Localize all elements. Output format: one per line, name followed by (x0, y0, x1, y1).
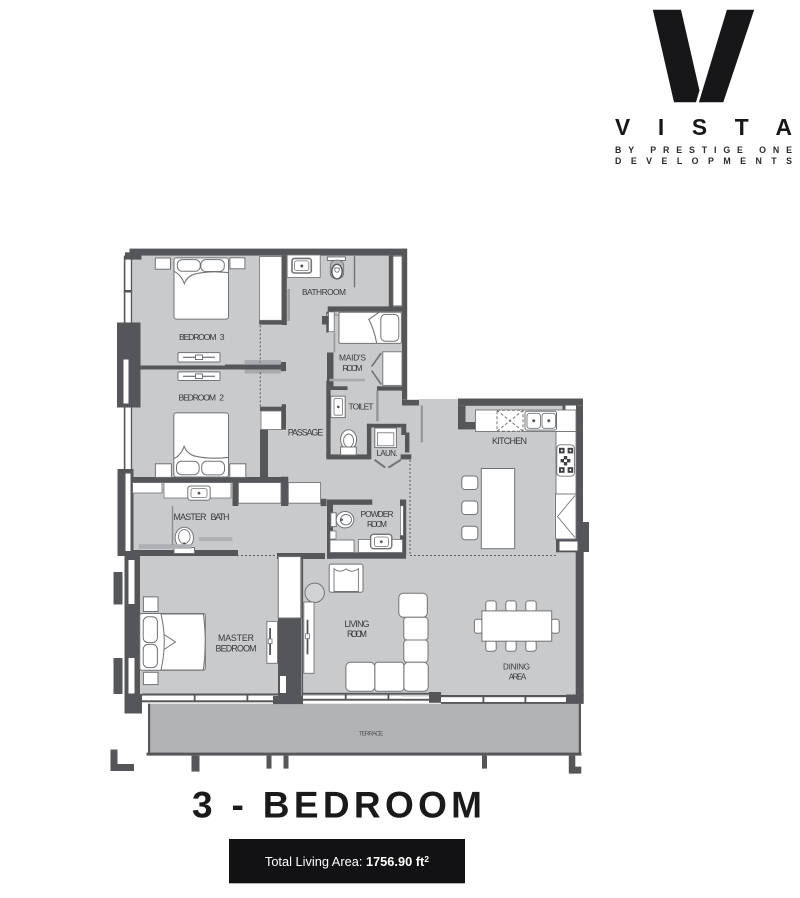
svg-text:PASSAGE: PASSAGE (288, 428, 324, 438)
svg-text:BATH: BATH (211, 512, 230, 522)
svg-text:DEVELOPMENTS: DEVELOPMENTS (615, 156, 792, 166)
svg-text:MAID'S: MAID'S (339, 353, 366, 363)
svg-text:3 - BEDROOM: 3 - BEDROOM (192, 785, 482, 826)
svg-text:Total Living Area: 1756.90 ft2: Total Living Area: 1756.90 ft2 (265, 854, 429, 869)
svg-text:MASTER: MASTER (218, 633, 254, 643)
svg-text:TOILET: TOILET (349, 401, 374, 411)
svg-text:BEDROOM: BEDROOM (179, 393, 217, 403)
svg-text:2: 2 (219, 393, 224, 403)
svg-text:ROOM: ROOM (343, 363, 363, 373)
svg-text:V I S T A: V I S T A (615, 114, 792, 140)
svg-text:ROOM: ROOM (367, 519, 387, 529)
svg-text:ROOM: ROOM (347, 629, 367, 639)
svg-text:BY PRESTIGE ONE: BY PRESTIGE ONE (615, 145, 792, 155)
svg-text:LAUN.: LAUN. (377, 449, 398, 458)
svg-text:POWDER: POWDER (361, 509, 394, 519)
svg-text:TERRACE: TERRACE (359, 731, 384, 738)
svg-text:DINING: DINING (503, 662, 530, 671)
svg-text:BATHROOM: BATHROOM (302, 287, 346, 297)
svg-text:MASTER: MASTER (174, 512, 207, 522)
svg-text:BEDROOM: BEDROOM (216, 643, 257, 653)
svg-text:LIVING: LIVING (345, 619, 370, 629)
svg-text:AREA: AREA (509, 672, 527, 681)
svg-text:BEDROOM: BEDROOM (179, 332, 217, 342)
svg-text:3: 3 (220, 332, 225, 342)
svg-text:KITCHEN: KITCHEN (492, 436, 527, 446)
